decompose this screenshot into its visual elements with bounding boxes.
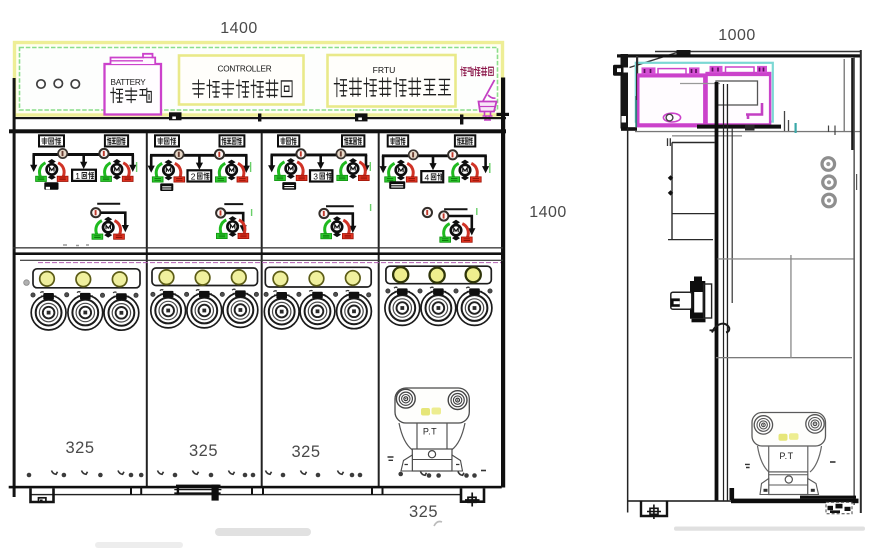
svg-text:P.T: P.T	[779, 451, 793, 461]
svg-text:1400: 1400	[220, 20, 258, 37]
svg-text:1: 1	[75, 171, 80, 181]
svg-text:325: 325	[189, 442, 218, 460]
svg-text:4: 4	[425, 172, 430, 182]
svg-text:2: 2	[191, 172, 196, 182]
svg-text:1000: 1000	[718, 27, 756, 44]
svg-text:BATTERY: BATTERY	[111, 78, 147, 87]
svg-text:P.T: P.T	[423, 427, 437, 437]
svg-text:325: 325	[291, 443, 320, 461]
svg-text:CONTROLLER: CONTROLLER	[218, 65, 272, 74]
svg-text:FRTU: FRTU	[373, 65, 396, 75]
svg-text:325: 325	[409, 503, 438, 521]
svg-text:325: 325	[65, 439, 94, 457]
svg-text:1400: 1400	[529, 204, 567, 221]
svg-text:3: 3	[313, 172, 318, 182]
